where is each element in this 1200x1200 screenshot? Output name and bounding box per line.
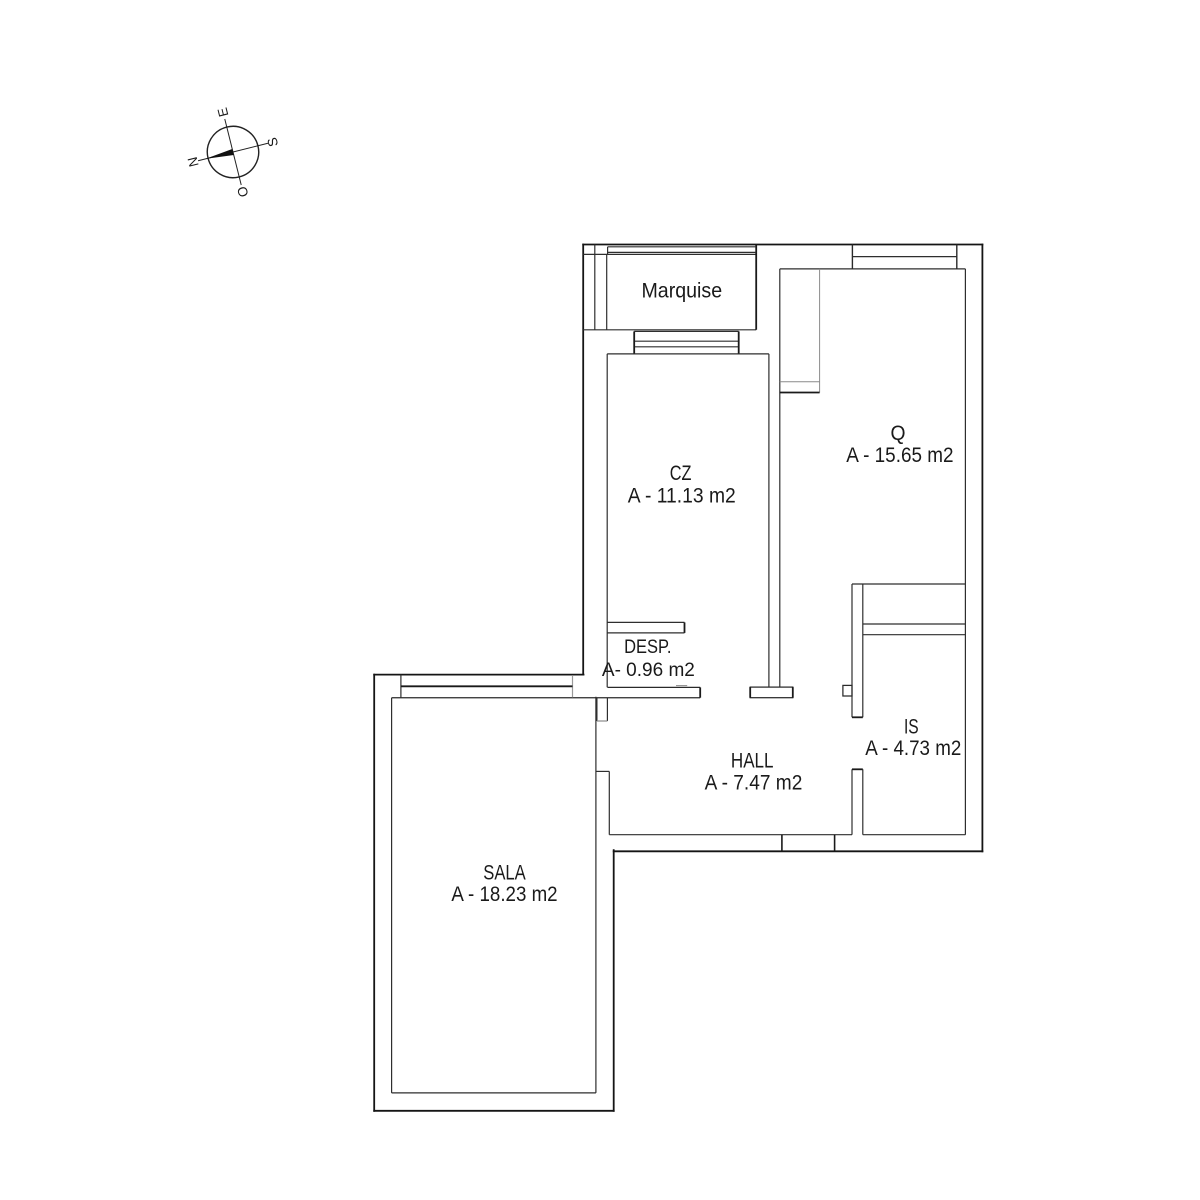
svg-text:IS: IS <box>904 716 919 739</box>
svg-text:N: N <box>185 155 202 168</box>
svg-text:HALL: HALL <box>731 750 774 773</box>
svg-text:Marquise: Marquise <box>641 279 722 302</box>
svg-text:A - 18.23 m2: A - 18.23 m2 <box>451 883 557 906</box>
svg-text:DESP.: DESP. <box>624 636 671 658</box>
svg-text:SALA: SALA <box>483 862 526 885</box>
svg-text:A- 0.96 m2: A- 0.96 m2 <box>602 659 695 681</box>
svg-text:S: S <box>264 136 281 148</box>
svg-text:A - 4.73 m2: A - 4.73 m2 <box>865 737 961 760</box>
svg-text:A - 7.47 m2: A - 7.47 m2 <box>705 772 803 795</box>
svg-text:CZ: CZ <box>670 462 692 485</box>
svg-text:E: E <box>215 106 232 118</box>
svg-text:A - 15.65 m2: A - 15.65 m2 <box>846 444 953 467</box>
svg-text:O: O <box>234 185 251 199</box>
svg-text:Q: Q <box>891 422 906 445</box>
svg-text:A - 11.13 m2: A - 11.13 m2 <box>628 485 736 508</box>
